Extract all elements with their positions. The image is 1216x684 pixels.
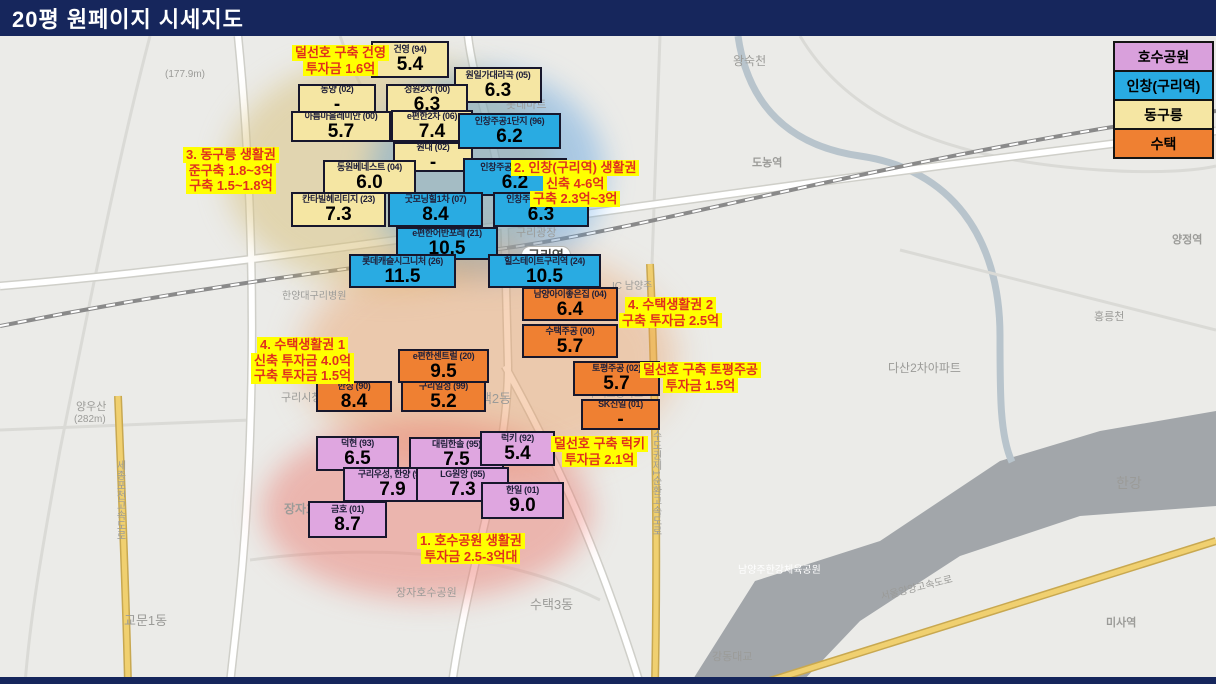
annotations: 덜선호 구축 건영투자금 1.6억3. 동구릉 생활권준구축 1.8~3억구축 … — [0, 0, 1216, 684]
annotation-line: 투자금 1.5억 — [663, 378, 739, 394]
annotation-line: 신축 4-6억 — [543, 176, 607, 192]
legend-row-label: 인창(구리역) — [1127, 76, 1201, 96]
annotation-line: 투자금 1.6억 — [303, 61, 379, 77]
annotation-line: 덜선호 구축 럭키 — [551, 436, 648, 452]
annotation: 덜선호 구축 건영투자금 1.6억 — [292, 45, 389, 76]
legend-row: 수택 — [1115, 130, 1212, 157]
annotation: 3. 동구릉 생활권준구축 1.8~3억구축 1.5~1.8억 — [183, 147, 279, 194]
annotation-line: 3. 동구릉 생활권 — [183, 147, 279, 163]
legend-row: 호수공원 — [1115, 43, 1212, 72]
annotation: 4. 수택생활권 2구축 투자금 2.5억 — [619, 297, 722, 328]
annotation-line: 1. 호수공원 생활권 — [417, 533, 525, 549]
legend-row-label: 호수공원 — [1138, 47, 1190, 67]
annotation: 2. 인창(구리역) 생활권신축 4-6억구축 2.3억~3억 — [511, 160, 639, 207]
page-title: 20평 원페이지 시세지도 — [0, 2, 244, 34]
annotation-line: 구축 투자금 1.5억 — [251, 368, 354, 384]
annotation: 4. 수택생활권 1신축 투자금 4.0억구축 투자금 1.5억 — [251, 337, 354, 384]
annotation-line: 투자금 2.5-3억대 — [421, 549, 520, 565]
annotation-line: 2. 인창(구리역) 생활권 — [511, 160, 639, 176]
annotation: 1. 호수공원 생활권투자금 2.5-3억대 — [417, 533, 525, 564]
annotation-line: 덜선호 구축 건영 — [292, 45, 389, 61]
annotation-line: 신축 투자금 4.0억 — [251, 353, 354, 369]
legend: 호수공원 인창(구리역) 동구릉 수택 — [1113, 41, 1214, 159]
title-bar: 20평 원페이지 시세지도 — [0, 0, 1216, 36]
annotation-line: 4. 수택생활권 2 — [625, 297, 716, 313]
legend-row-label: 동구릉 — [1144, 105, 1183, 125]
annotation: 덜선호 구축 럭키투자금 2.1억 — [551, 436, 648, 467]
annotation-line: 구축 1.5~1.8억 — [186, 178, 275, 194]
annotation: 덜선호 구축 토평주공투자금 1.5억 — [640, 362, 761, 393]
annotation-line: 투자금 2.1억 — [562, 452, 638, 468]
annotation-line: 준구축 1.8~3억 — [186, 163, 276, 179]
annotation-line: 구축 2.3억~3억 — [530, 191, 620, 207]
annotation-line: 덜선호 구축 토평주공 — [640, 362, 761, 378]
annotation-line: 4. 수택생활권 1 — [257, 337, 348, 353]
legend-row: 인창(구리역) — [1115, 72, 1212, 101]
bottom-bar — [0, 677, 1216, 684]
map-canvas: (177.9m)왕숙천도농역양정역롯데마트구리광장구리역한양대구리병원IC 남양… — [0, 0, 1216, 684]
annotation-line: 구축 투자금 2.5억 — [619, 313, 722, 329]
legend-row-label: 수택 — [1151, 134, 1177, 154]
legend-row: 동구릉 — [1115, 101, 1212, 130]
